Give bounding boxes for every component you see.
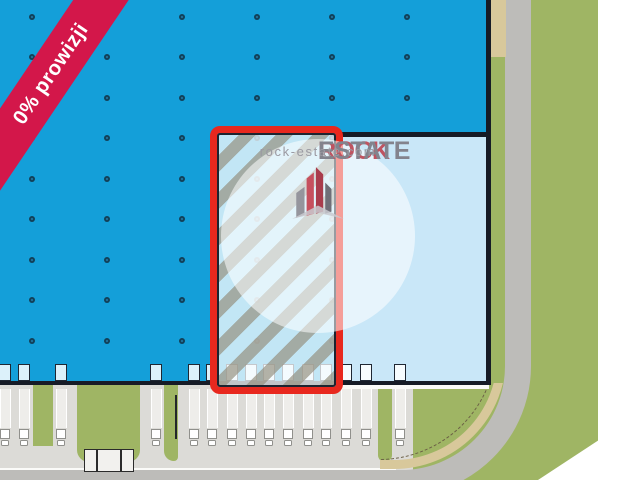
skyline-logo-icon bbox=[286, 163, 350, 221]
brand-watermark: ROCKESTATE rock-estate.com bbox=[221, 139, 415, 333]
dock-door bbox=[0, 364, 11, 381]
dock-door bbox=[18, 364, 30, 381]
brand-website: rock-estate.com bbox=[260, 144, 376, 159]
site-plan: 0% prowizji ROCKESTATE rock-estate.com bbox=[0, 0, 640, 480]
dock-door bbox=[394, 364, 406, 381]
dock-door bbox=[55, 364, 67, 381]
map-edge bbox=[598, 0, 640, 480]
dock-door bbox=[360, 364, 372, 381]
dock-door bbox=[188, 364, 200, 381]
dock-door bbox=[150, 364, 162, 381]
